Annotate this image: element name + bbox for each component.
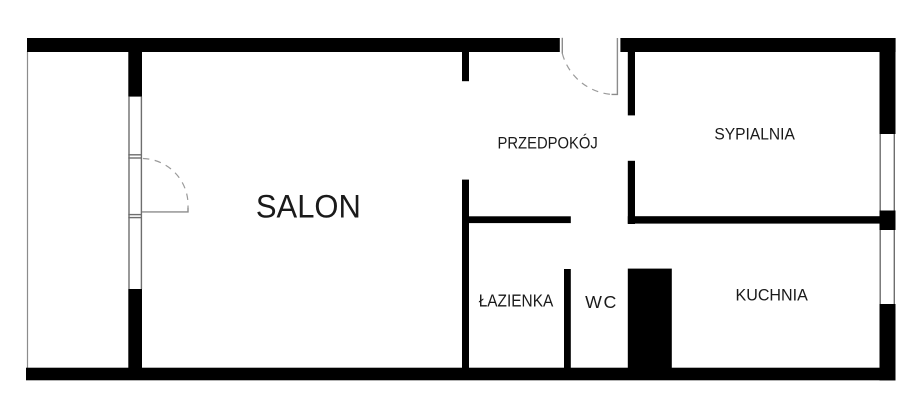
- svg-text:WC: WC: [585, 292, 618, 312]
- svg-text:PRZEDPOKÓJ: PRZEDPOKÓJ: [498, 133, 598, 152]
- svg-text:SYPIALNIA: SYPIALNIA: [714, 125, 795, 144]
- svg-text:ŁAZIENKA: ŁAZIENKA: [479, 291, 554, 311]
- svg-text:SALON: SALON: [256, 189, 361, 225]
- svg-text:KUCHNIA: KUCHNIA: [736, 285, 809, 304]
